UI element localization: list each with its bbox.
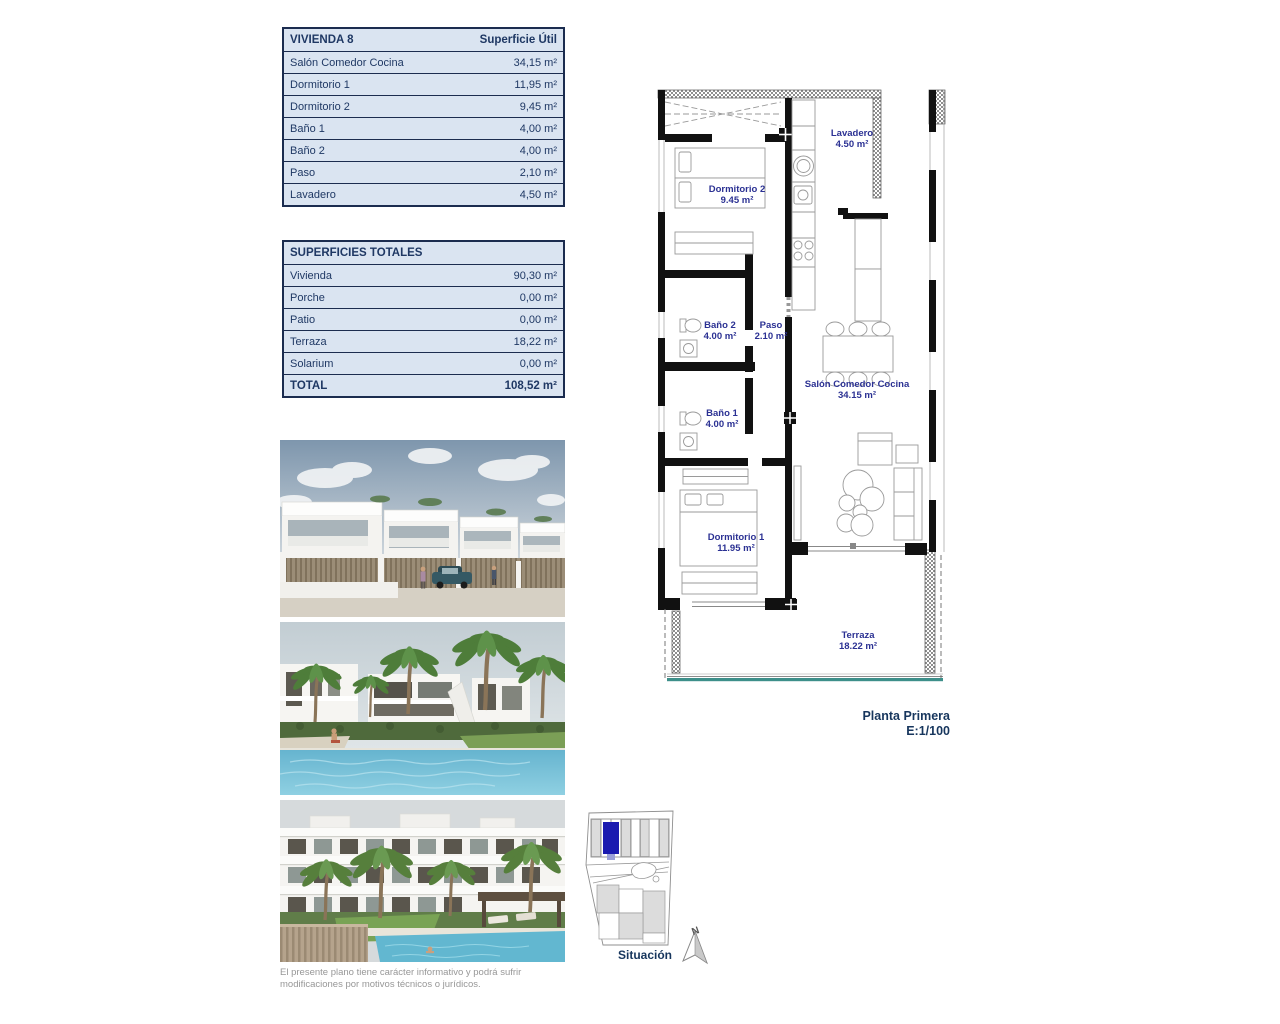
front-wall (280, 582, 398, 598)
furniture (675, 100, 922, 594)
totals-table: SUPERFICIES TOTALES Vivienda90,30 m² Por… (282, 240, 565, 398)
situation-label: Situación (595, 948, 695, 962)
render-photo-townhouses (280, 440, 565, 617)
render-photo-pool (280, 622, 565, 795)
disclaimer-text: El presente plano tiene carácter informa… (280, 967, 570, 991)
highlighted-unit-entry (607, 854, 615, 860)
room-label-lavadero: Lavadero 4.50 m² (802, 128, 902, 150)
situation-map (583, 805, 728, 970)
table-header-row: VIVIENDA 8 Superficie Útil (283, 28, 564, 52)
table-row: Salón Comedor Cocina34,15 m² (283, 52, 564, 74)
table-row: Patio0,00 m² (283, 309, 564, 331)
table-row: Dormitorio 111,95 m² (283, 74, 564, 96)
render-photo-apartments (280, 800, 565, 962)
vivienda-areas-table: VIVIENDA 8 Superficie Útil Salón Comedor… (282, 27, 565, 207)
table-row: Baño 24,00 m² (283, 140, 564, 162)
table-total-row: TOTAL108,52 m² (283, 375, 564, 398)
pool-water (280, 750, 565, 795)
highlighted-unit (603, 822, 619, 854)
room-label-paso: Paso 2.10 m² (741, 320, 801, 342)
table-row: Vivienda90,30 m² (283, 265, 564, 287)
table-title: VIVIENDA 8 (283, 28, 444, 52)
table-row: Solarium0,00 m² (283, 353, 564, 375)
table-row: Paso2,10 m² (283, 162, 564, 184)
room-label-salon: Salón Comedor Cocina 34.15 m² (787, 379, 927, 401)
stair-marks (665, 102, 781, 126)
table-row: Terraza18,22 m² (283, 331, 564, 353)
room-label-bano1: Baño 1 4.00 m² (682, 408, 762, 430)
table-row: Porche0,00 m² (283, 287, 564, 309)
table-row: Dormitorio 29,45 m² (283, 96, 564, 118)
pool-water (375, 931, 565, 962)
room-label-dormitorio1: Dormitorio 1 11.95 m² (686, 532, 786, 554)
parcels (597, 885, 665, 943)
table-title: SUPERFICIES TOTALES (283, 241, 564, 265)
room-label-dormitorio2: Dormitorio 2 9.45 m² (687, 184, 787, 206)
terrace-edge-teal (667, 678, 943, 681)
room-label-terraza: Terraza 18.22 m² (808, 630, 908, 652)
wood-fence (280, 926, 368, 962)
plan-title: Planta Primera E:1/100 (800, 709, 950, 739)
table-row: Lavadero4,50 m² (283, 184, 564, 207)
table-header-row: SUPERFICIES TOTALES (283, 241, 564, 265)
plan-sheet: VIVIENDA 8 Superficie Útil Salón Comedor… (0, 0, 1280, 1024)
table-row: Baño 14,00 m² (283, 118, 564, 140)
table-col-header: Superficie Útil (444, 28, 564, 52)
